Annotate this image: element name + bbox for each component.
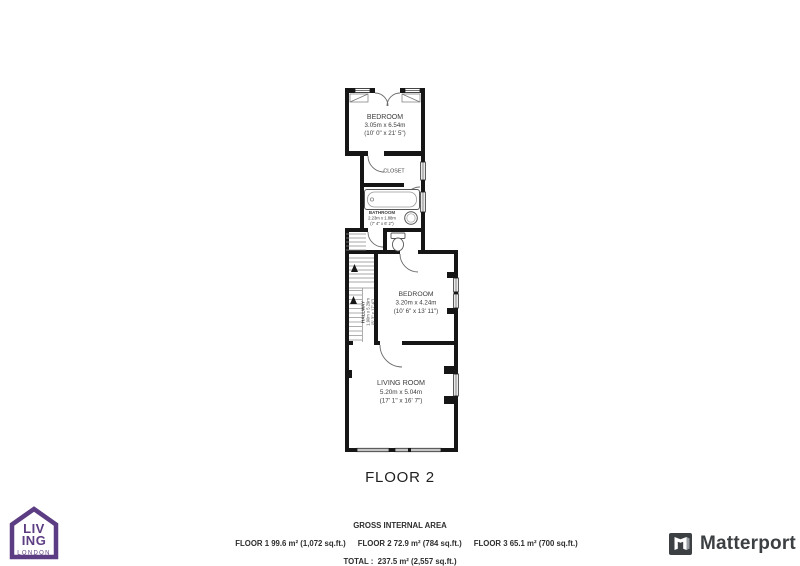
room-dims-imperial: (10' 6" x 13' 11") — [394, 308, 438, 315]
gia-total-line: TOTAL : 237.5 m² (2,557 sq.ft.) — [0, 557, 800, 566]
room-name: BEDROOM — [398, 291, 433, 298]
room-dims-imperial: (7' 4" x 6' 2") — [370, 221, 394, 226]
gia-floor3: FLOOR 3 65.1 m² (700 sq.ft.) — [474, 539, 578, 548]
sink — [405, 212, 418, 225]
room-dims-metric: 3.05m x 6.54m — [365, 122, 406, 129]
matterport-icon — [668, 531, 694, 557]
floorplan-page: BEDROOM 3.05m x 6.54m (10' 0" x 21' 5") … — [0, 0, 800, 566]
room-name: BATHROOM — [369, 210, 395, 215]
gia-title: GROSS INTERNAL AREA — [0, 521, 800, 530]
matterport-logo: Matterport — [668, 531, 796, 557]
room-bedroom-1: BEDROOM 3.05m x 6.54m (10' 0" x 21' 5") — [364, 114, 406, 137]
room-living-room: LIVING ROOM 5.20m x 5.04m (17' 1" x 16' … — [377, 378, 425, 405]
floor-title: FLOOR 2 — [0, 469, 800, 486]
room-dims-metric: 2.23m x 1.88m — [368, 216, 396, 221]
living-london-house-icon: LIV ING LONDON — [8, 506, 60, 560]
room-dims-imperial: (17' 1" x 16' 7") — [380, 398, 423, 405]
room-name: BEDROOM — [367, 114, 403, 121]
living-london-logo: LIV ING LONDON — [8, 506, 60, 565]
room-dims-imperial: (10' 0" x 21' 5") — [364, 130, 406, 137]
bathtub — [365, 190, 420, 210]
floor-plan: BEDROOM 3.05m x 6.54m (10' 0" x 21' 5") … — [0, 0, 800, 500]
gia-floor1: FLOOR 1 99.6 m² (1,072 sq.ft.) — [235, 539, 346, 548]
room-dims-metric: 3.20m x 4.24m — [396, 300, 437, 307]
matterport-wordmark: Matterport — [700, 533, 796, 555]
gia-floor2: FLOOR 2 72.9 m² (784 sq.ft.) — [358, 539, 462, 548]
room-name: LIVING ROOM — [377, 378, 425, 387]
logo-london-text: LONDON — [17, 551, 50, 557]
room-dims-metric: 5.20m x 5.04m — [380, 389, 422, 396]
room-labels: BEDROOM 3.05m x 6.54m (10' 0" x 21' 5") … — [360, 114, 438, 405]
room-closet-label: CLOSET — [383, 169, 405, 175]
logo-ing-text: ING — [22, 533, 47, 548]
room-bedroom-2: BEDROOM 3.20m x 4.24m (10' 6" x 13' 11") — [394, 291, 438, 315]
room-dims-imperial: (6' 3" x 17' 4") — [370, 299, 375, 325]
room-hallway: HALLWAY 1.90m x 5.29m (6' 3" x 17' 4") — [360, 298, 375, 326]
toilet — [391, 233, 405, 251]
room-bathroom: BATHROOM 2.23m x 1.88m (7' 4" x 6' 2") — [368, 210, 396, 226]
